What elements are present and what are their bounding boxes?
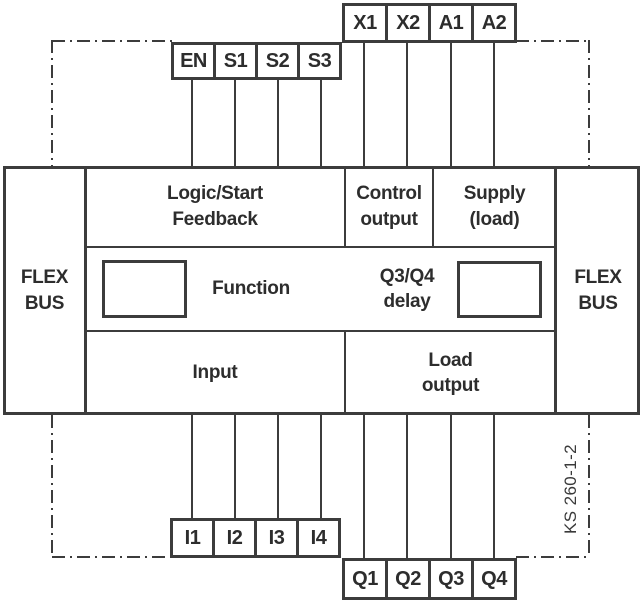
load-output-label: Load output [346,332,555,414]
terminal-i4: I4 [296,518,341,558]
control-output-label: Control output [346,166,432,247]
terminal-row-top-outer: X1 X2 A1 A2 [342,3,517,43]
wire-s1 [234,80,236,166]
wire-x1 [363,43,365,166]
wire-a1 [450,43,452,166]
delay-indicator-box [457,261,542,318]
frame-top-right-segment [516,40,590,42]
q3-q4-delay-label: Q3/Q4 delay [345,248,469,330]
wiring-diagram: FLEX BUS FLEX BUS Logic/Start Feedback C… [0,0,643,600]
wire-q4 [493,415,495,558]
terminal-s1: S1 [213,42,258,80]
terminal-x2: X2 [385,3,431,43]
wire-x2 [406,43,408,166]
terminal-row-bottom-inner: I1 I2 I3 I4 [170,518,341,558]
supply-load-label: Supply (load) [434,166,555,247]
wire-q3 [450,415,452,558]
terminal-x1: X1 [342,3,388,43]
wire-s3 [320,80,322,166]
frame-bottom-left-segment [52,556,171,558]
flex-bus-left-label: FLEX BUS [3,166,86,415]
terminal-q1: Q1 [342,558,388,600]
wire-i4 [320,415,322,518]
flex-bus-right-label: FLEX BUS [556,166,640,415]
logic-start-feedback-label: Logic/Start Feedback [86,166,344,247]
terminal-row-top-inner: EN S1 S2 S3 [171,42,342,80]
terminal-q4: Q4 [471,558,517,600]
terminal-i2: I2 [212,518,257,558]
terminal-i3: I3 [254,518,299,558]
wire-q1 [363,415,365,558]
function-label: Function [187,248,315,330]
wire-s2 [277,80,279,166]
terminal-i1: I1 [170,518,215,558]
wire-i2 [234,415,236,518]
terminal-q2: Q2 [385,558,431,600]
wire-en [191,80,193,166]
wire-a2 [493,43,495,166]
wire-i1 [191,415,193,518]
reference-code-label: KS 260-1-2 [561,419,581,559]
frame-top-left-segment [52,40,172,42]
terminal-a2: A2 [471,3,517,43]
terminal-s3: S3 [297,42,342,80]
function-indicator-box [102,260,187,318]
terminal-q3: Q3 [428,558,474,600]
terminal-s2: S2 [255,42,300,80]
terminal-en: EN [171,42,216,80]
input-label: Input [86,332,344,414]
terminal-a1: A1 [428,3,474,43]
wire-q2 [406,415,408,558]
wire-i3 [277,415,279,518]
terminal-row-bottom-outer: Q1 Q2 Q3 Q4 [342,558,517,600]
